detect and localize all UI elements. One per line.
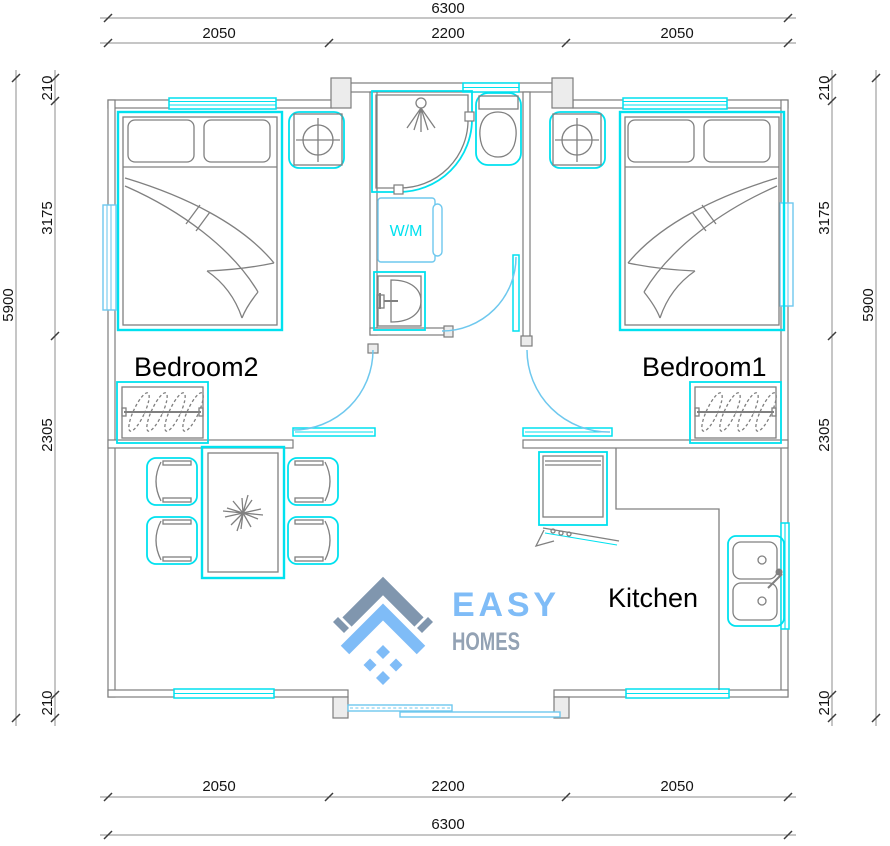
dim-label-right-seg4: 210: [816, 690, 833, 715]
room-label-bedroom1: Bedroom1: [642, 352, 767, 382]
dimension-top-segments: 2050 2200 2050: [100, 25, 796, 47]
wardrobe-bedroom2: [117, 382, 208, 443]
window-bottom-right: [626, 689, 729, 698]
dimension-right-overall: 5900: [860, 70, 880, 726]
pillow: [204, 120, 270, 162]
dim-label-bottom-overall: 6300: [431, 816, 464, 833]
chair-right-top: [288, 458, 338, 505]
window-left-bedroom2: [103, 205, 116, 310]
door-bathroom: [442, 255, 519, 331]
window-right-bedroom1: [780, 203, 793, 306]
door-arc-bathroom: [442, 257, 516, 331]
easy-homes-logo: EASY HOMES: [333, 586, 558, 685]
logo-diamond-icon: [390, 659, 403, 672]
dim-label-right-seg2: 3175: [816, 201, 833, 234]
dim-label-top-seg2: 2200: [431, 25, 464, 42]
dimension-right-segments: 210 3175 2305 210: [816, 70, 836, 726]
dim-label-bottom-seg1: 2050: [202, 778, 235, 795]
bed-bedroom2: [118, 112, 282, 330]
washing-machine: W/M: [378, 198, 442, 262]
dim-label-left-seg1: 210: [39, 75, 56, 100]
dim-label-top-overall: 6300: [431, 0, 464, 17]
bed-bedroom1: [620, 112, 784, 330]
dim-label-right-seg1: 210: [816, 75, 833, 100]
pillow: [704, 120, 770, 162]
logo-text-secondary: HOMES: [452, 628, 520, 656]
dim-label-bottom-seg3: 2050: [660, 778, 693, 795]
logo-diamond-icon: [376, 645, 390, 659]
logo-diamond-icon: [364, 659, 377, 672]
door-arc-bedroom2: [293, 350, 373, 430]
pillow: [628, 120, 694, 162]
chair-left-top: [147, 458, 197, 505]
dimension-bottom-overall: 6300: [100, 816, 796, 839]
dimension-left-segments: 210 3175 2305 210: [39, 70, 59, 726]
logo-roof-icon: [333, 586, 433, 685]
window-top-right: [623, 98, 727, 109]
room-label-kitchen: Kitchen: [608, 583, 698, 613]
chair-left-bottom: [147, 517, 197, 564]
dining-table: [202, 447, 284, 578]
kitchen-sink: [728, 536, 784, 626]
drain-icon: [758, 556, 766, 564]
dim-label-left-seg4: 210: [39, 690, 56, 715]
shower-head-icon: [407, 98, 435, 132]
door-bedroom2: [293, 350, 375, 436]
dimension-top-overall: 6300: [100, 0, 796, 22]
dim-label-right-seg3: 2305: [816, 418, 833, 451]
window-bottom-left: [174, 689, 274, 698]
floor-plan-page: 6300 2050 2200 2050 2050 2200 2050 6300 …: [0, 0, 890, 846]
shower: [372, 91, 474, 194]
logo-text-primary: EASY: [452, 586, 558, 624]
door-bedroom1: [523, 350, 612, 436]
chair-right-bottom: [288, 517, 338, 564]
blanket: [125, 178, 274, 318]
dimension-bottom-segments: 2050 2200 2050: [100, 778, 796, 801]
nightstand-bedroom2: [289, 112, 344, 168]
pillar-bottom-left: [333, 697, 348, 718]
drain-icon: [758, 597, 766, 605]
pillar-top-right: [552, 78, 573, 108]
dim-label-left-seg3: 2305: [39, 418, 56, 451]
pillar-top-left: [331, 78, 351, 108]
blanket: [628, 178, 777, 318]
door-arc-bedroom1: [527, 350, 610, 432]
dim-label-left-seg2: 3175: [39, 201, 56, 234]
dim-label-left-overall: 5900: [0, 288, 17, 321]
washing-machine-label: W/M: [390, 223, 423, 240]
dimension-left-overall: 5900: [0, 70, 20, 726]
toilet: [476, 93, 521, 165]
entry-sliding-door: [348, 705, 560, 717]
dim-label-top-seg1: 2050: [202, 25, 235, 42]
floor-plan-drawing: 6300 2050 2200 2050 2050 2200 2050 6300 …: [0, 0, 890, 846]
wardrobe-bedroom1: [690, 382, 781, 443]
nightstand-bedroom1: [550, 112, 605, 168]
washbasin: [374, 272, 425, 330]
fridge-open-door: [536, 528, 619, 546]
room-label-bedroom2: Bedroom2: [134, 352, 259, 382]
pillow: [128, 120, 194, 162]
fridge: [536, 452, 619, 546]
dim-label-bottom-seg2: 2200: [431, 778, 464, 795]
kitchen-counter: [616, 448, 719, 690]
logo-diamond-icon: [376, 671, 390, 685]
dim-label-right-overall: 5900: [860, 288, 877, 321]
window-top-left: [169, 98, 276, 109]
plant-icon: [223, 495, 263, 531]
dim-label-top-seg3: 2050: [660, 25, 693, 42]
